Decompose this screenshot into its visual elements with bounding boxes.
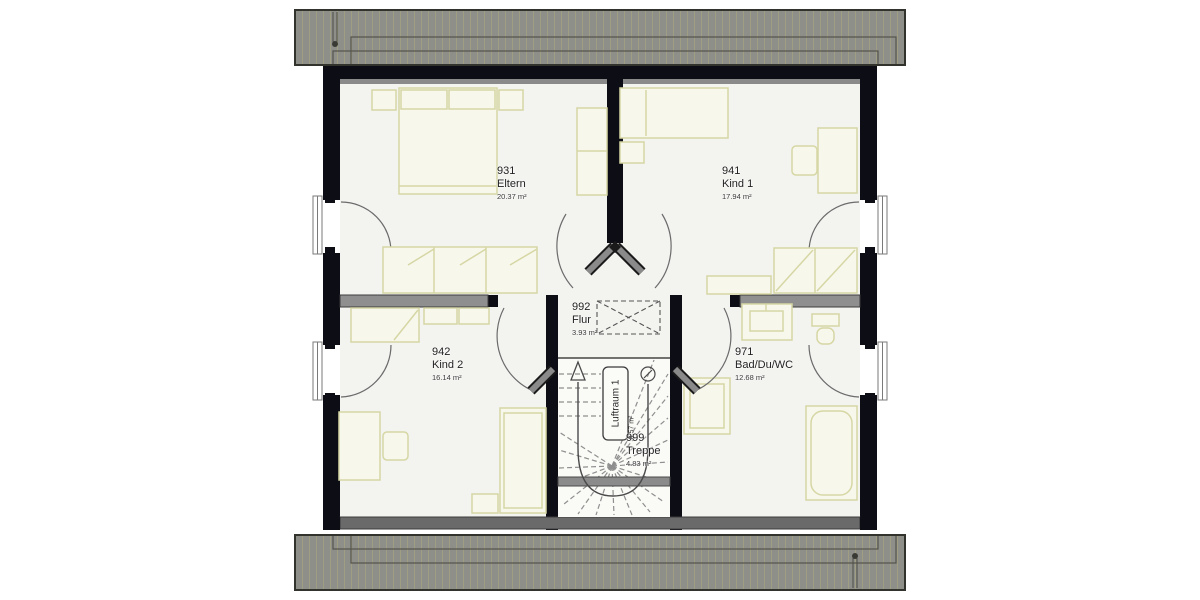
room-number: 941 <box>722 165 753 178</box>
room-area: 12.68 m² <box>735 373 793 382</box>
floorplan-canvas: 931 Eltern 20.37 m² 941 Kind 1 17.94 m² … <box>0 0 1200 600</box>
room-label-eltern: 931 Eltern 20.37 m² <box>497 165 527 201</box>
room-area: 17.94 m² <box>722 192 753 201</box>
room-name: Eltern <box>497 178 527 191</box>
stair-landing-edge <box>558 477 670 486</box>
room-area: 20.37 m² <box>497 192 527 201</box>
room-name: Flur <box>572 314 597 327</box>
roof-band-bottom <box>295 535 905 590</box>
room-number: 971 <box>735 346 793 359</box>
room-area: 3.93 m² <box>572 328 597 337</box>
room-label-kind2: 942 Kind 2 16.14 m² <box>432 346 463 382</box>
room-number: 931 <box>497 165 527 178</box>
roof-band-top <box>295 10 905 65</box>
room-label-kind1: 941 Kind 1 17.94 m² <box>722 165 753 201</box>
room-number: 942 <box>432 346 463 359</box>
room-label-flur: 992 Flur 3.93 m² <box>572 301 597 337</box>
room-name: Kind 2 <box>432 359 463 372</box>
room-name: Bad/Du/WC <box>735 359 793 372</box>
room-area: 16.14 m² <box>432 373 463 382</box>
knee-wall-bottom <box>323 517 877 530</box>
room-area: 4.83 m² <box>626 459 660 468</box>
room-label-luftraum: Luftraum 1 <box>611 364 622 444</box>
floorplan-drawing <box>0 0 1200 600</box>
room-area-luftraum: 0.57 m² <box>629 406 636 450</box>
room-name: Kind 1 <box>722 178 753 191</box>
room-label-bad: 971 Bad/Du/WC 12.68 m² <box>735 346 793 382</box>
room-number: 992 <box>572 301 597 314</box>
